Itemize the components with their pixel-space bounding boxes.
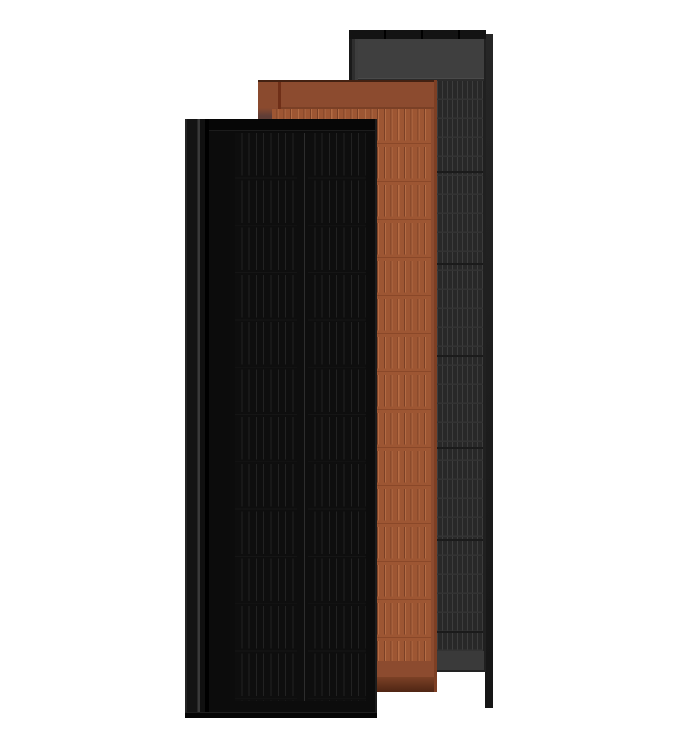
terracotta-panel-right-edge — [434, 80, 437, 692]
terracotta-panel-top-edge — [258, 80, 437, 82]
solar-panel-black — [185, 119, 377, 718]
black-panel-left-rail — [185, 119, 209, 718]
black-panel-cell-grid — [235, 133, 366, 701]
gray-panel-top-strip — [349, 30, 486, 39]
gray-panel-header-band — [358, 39, 484, 78]
solar-panels-product-image — [0, 0, 684, 748]
black-panel-bottom-edge — [185, 712, 377, 718]
black-panel-top-strip — [185, 119, 377, 131]
gray-panel-side-frame — [485, 34, 493, 708]
black-panel-center-divider — [297, 133, 308, 701]
black-panel-right-edge — [375, 119, 377, 718]
